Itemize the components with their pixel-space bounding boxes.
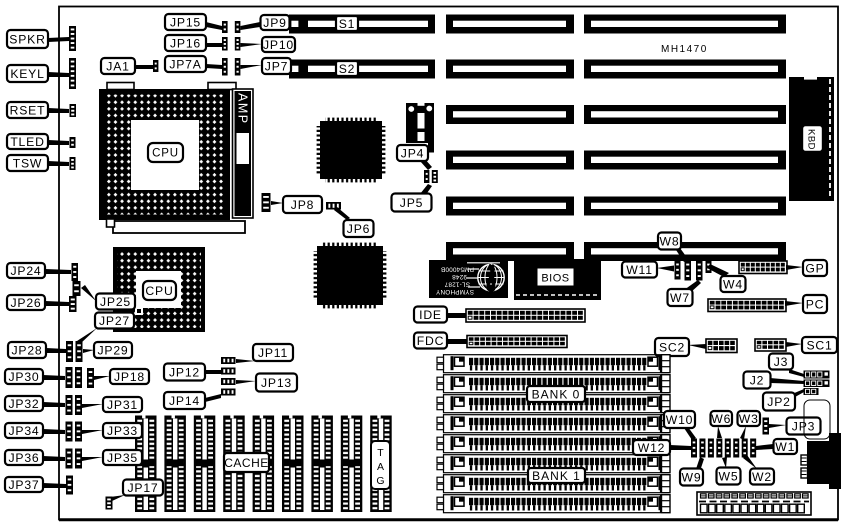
svg-text:JP15: JP15 — [170, 15, 201, 29]
svg-text:JP12: JP12 — [169, 365, 200, 379]
svg-text:JP13: JP13 — [261, 376, 292, 390]
svg-text:AMP: AMP — [236, 93, 250, 125]
svg-text:W11: W11 — [626, 263, 653, 277]
svg-text:JP10: JP10 — [263, 38, 294, 52]
svg-text:JA1: JA1 — [106, 59, 129, 73]
svg-text:FDC: FDC — [417, 334, 444, 348]
svg-text:SPKR: SPKR — [9, 32, 45, 46]
svg-text:G: G — [376, 475, 384, 487]
svg-text:JP37: JP37 — [9, 478, 40, 492]
svg-text:JP7A: JP7A — [169, 57, 201, 71]
svg-text:SYMPHONY: SYMPHONY — [435, 288, 474, 295]
svg-text:JP14: JP14 — [169, 394, 200, 408]
svg-text:JP32: JP32 — [9, 397, 40, 411]
svg-text:W5: W5 — [719, 469, 739, 483]
svg-text:JP11: JP11 — [258, 346, 288, 360]
svg-text:JP17: JP17 — [128, 481, 159, 495]
svg-text:CACHE: CACHE — [224, 456, 269, 470]
svg-text:JP4: JP4 — [401, 146, 424, 160]
svg-text:IDE: IDE — [419, 308, 442, 322]
svg-text:KEYL: KEYL — [10, 67, 44, 81]
svg-text:T: T — [377, 447, 384, 459]
svg-text:JP31: JP31 — [107, 398, 138, 412]
svg-text:JP2: JP2 — [767, 395, 790, 409]
svg-text:TSW: TSW — [13, 156, 42, 170]
svg-text:BANK 1: BANK 1 — [532, 469, 581, 483]
svg-text:W12: W12 — [638, 441, 665, 455]
svg-text:JP27: JP27 — [99, 314, 130, 328]
svg-text:W4: W4 — [723, 277, 743, 291]
svg-text:W10: W10 — [666, 413, 693, 427]
svg-text:PC: PC — [806, 297, 825, 311]
svg-text:S2: S2 — [339, 62, 356, 76]
svg-text:GP: GP — [805, 261, 824, 275]
svg-text:W7: W7 — [670, 291, 690, 305]
svg-text:JP16: JP16 — [170, 36, 201, 50]
svg-text:MH1470: MH1470 — [661, 44, 708, 55]
svg-text:S1: S1 — [339, 17, 356, 31]
svg-text:W8: W8 — [660, 234, 680, 248]
svg-text:CPU: CPU — [145, 284, 173, 298]
svg-text:TLED: TLED — [10, 135, 44, 149]
svg-text:SC1: SC1 — [806, 338, 832, 352]
svg-text:JP6: JP6 — [347, 222, 370, 236]
svg-text:KBD: KBD — [806, 129, 817, 150]
svg-text:JP26: JP26 — [11, 296, 42, 310]
svg-text:JP18: JP18 — [114, 370, 145, 384]
svg-text:JP24: JP24 — [11, 264, 42, 278]
svg-text:J3: J3 — [774, 355, 788, 369]
svg-text:JP30: JP30 — [9, 370, 40, 384]
svg-text:SC2: SC2 — [659, 340, 685, 354]
svg-text:JP29: JP29 — [98, 343, 129, 357]
svg-text:W6: W6 — [711, 412, 731, 426]
svg-text:A: A — [377, 461, 384, 473]
svg-text:JP25: JP25 — [100, 295, 131, 309]
svg-text:PM54000B: PM54000B — [441, 266, 474, 273]
svg-text:W1: W1 — [775, 440, 795, 454]
svg-text:JP36: JP36 — [9, 451, 40, 465]
svg-text:9248: 9248 — [452, 273, 467, 280]
svg-text:JP34: JP34 — [9, 424, 40, 438]
svg-text:W9: W9 — [682, 470, 702, 484]
svg-text:SL-1287: SL-1287 — [444, 281, 470, 288]
svg-text:W3: W3 — [739, 412, 759, 426]
svg-text:BIOS: BIOS — [541, 273, 569, 285]
svg-text:CPU: CPU — [152, 148, 179, 160]
svg-text:JP33: JP33 — [107, 424, 138, 438]
svg-text:JP9: JP9 — [263, 16, 286, 30]
svg-text:J2: J2 — [750, 373, 764, 387]
svg-text:JP28: JP28 — [12, 343, 43, 357]
svg-text:W2: W2 — [752, 470, 772, 484]
svg-text:RSET: RSET — [10, 103, 46, 117]
svg-text:JP35: JP35 — [107, 451, 138, 465]
svg-text:JP8: JP8 — [291, 198, 314, 212]
svg-text:JP5: JP5 — [400, 196, 423, 210]
svg-text:BANK 0: BANK 0 — [532, 387, 581, 401]
svg-text:JP7: JP7 — [265, 59, 288, 73]
